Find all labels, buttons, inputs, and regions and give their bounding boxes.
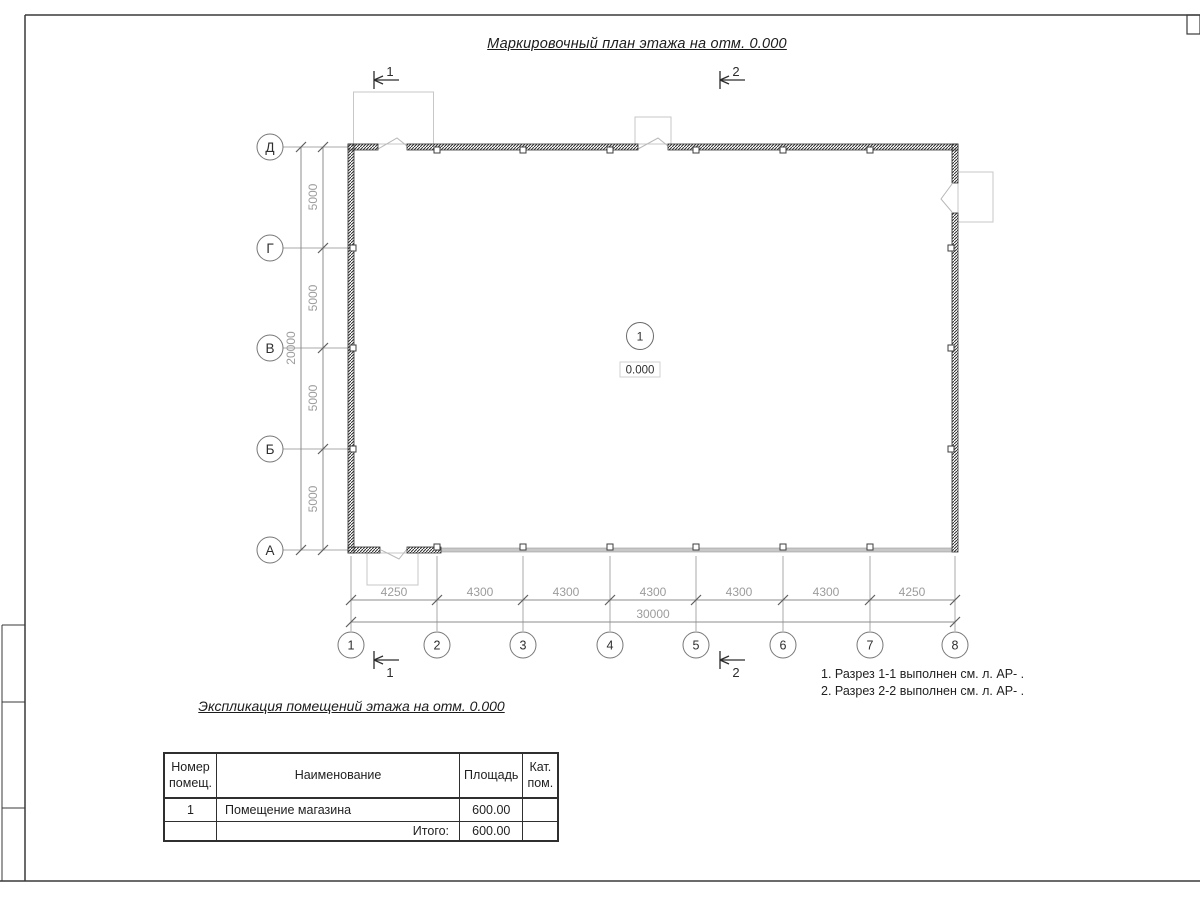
dim-h-5: 4300 — [726, 585, 753, 599]
door-right — [941, 184, 952, 212]
plan-title: Маркировочный план этажа на отм. 0.000 — [337, 36, 937, 52]
axis-row-a: А — [265, 543, 274, 558]
column-axis-labels: 1 2 3 4 5 6 7 8 — [348, 639, 959, 653]
header-area: Площадь — [460, 753, 523, 798]
frame-corner-cell — [1187, 15, 1200, 34]
axis-col-4: 4 — [607, 639, 614, 653]
axis-row-g: Г — [266, 241, 274, 256]
room-number: 1 — [637, 330, 644, 344]
door-swings — [378, 138, 952, 559]
wall-top-3 — [668, 144, 958, 150]
room-marker: 1 0.000 — [620, 323, 660, 378]
row-axis-labels: Д Г В Б А — [265, 140, 274, 558]
horizontal-dimension-labels: 4250 4300 4300 4300 4300 4300 4250 30000 — [381, 585, 926, 621]
axis-col-5: 5 — [693, 639, 700, 653]
wall-right-2 — [952, 213, 958, 552]
table-total-row: Итого: 600.00 — [164, 822, 558, 842]
notes: 1. Разрез 1-1 выполнен см. л. АР- . 2. Р… — [821, 666, 1024, 700]
drawing-sheet: 5000 5000 5000 5000 20000 4250 4300 4300… — [0, 0, 1200, 900]
elevation-value: 0.000 — [626, 365, 655, 377]
axis-col-1: 1 — [348, 639, 355, 653]
dim-h-6: 4300 — [813, 585, 840, 599]
section-1-top-label: 1 — [386, 64, 393, 79]
cell-room-name: Помещение магазина — [217, 798, 460, 822]
dim-v-2: 5000 — [306, 284, 320, 311]
section-2-top-label: 2 — [732, 64, 739, 79]
cell-total-category — [523, 822, 558, 842]
entrance-porches — [354, 92, 994, 585]
cell-room-area: 600.00 — [460, 798, 523, 822]
explication-table: Номер помещ. Наименование Площадь Кат. п… — [163, 752, 559, 842]
dim-h-total: 30000 — [636, 607, 670, 621]
dim-v-total: 20000 — [284, 331, 298, 365]
table-row: 1 Помещение магазина 600.00 — [164, 798, 558, 822]
axis-col-3: 3 — [520, 639, 527, 653]
axis-row-d: Д — [265, 140, 274, 155]
header-name: Наименование — [217, 753, 460, 798]
table-header-row: Номер помещ. Наименование Площадь Кат. п… — [164, 753, 558, 798]
column-axis-bubbles — [338, 632, 968, 658]
door-bottom-left — [381, 549, 407, 559]
porch-top-middle — [635, 117, 671, 144]
axis-col-8: 8 — [952, 639, 959, 653]
section-marks — [374, 71, 745, 669]
dimension-ticks — [296, 142, 960, 627]
table-title: Экспликация помещений этажа на отм. 0.00… — [163, 698, 540, 714]
porch-right — [958, 172, 993, 222]
dim-v-1: 5000 — [306, 183, 320, 210]
cell-total-area: 600.00 — [460, 822, 523, 842]
axis-row-v: В — [265, 341, 274, 356]
dim-h-3: 4300 — [553, 585, 580, 599]
dim-h-4: 4300 — [640, 585, 667, 599]
cell-room-number: 1 — [164, 798, 217, 822]
note-line-1: 1. Разрез 1-1 выполнен см. л. АР- . — [821, 666, 1024, 683]
axis-col-6: 6 — [780, 639, 787, 653]
dim-h-2: 4300 — [467, 585, 494, 599]
note-line-2: 2. Разрез 2-2 выполнен см. л. АР- . — [821, 683, 1024, 700]
axis-col-7: 7 — [867, 639, 874, 653]
section-2-bottom-label: 2 — [732, 665, 739, 680]
header-room-number: Номер помещ. — [164, 753, 217, 798]
porch-bottom-left — [367, 553, 418, 585]
wall-right-1 — [952, 144, 958, 183]
header-category: Кат. пом. — [523, 753, 558, 798]
cell-total-empty — [164, 822, 217, 842]
axis-extension-lines — [283, 147, 955, 631]
porch-top-left — [354, 92, 434, 144]
axis-row-b: Б — [266, 442, 275, 457]
dim-v-3: 5000 — [306, 384, 320, 411]
wall-bottom-1 — [348, 547, 380, 553]
cell-total-label: Итого: — [217, 822, 460, 842]
column-pilasters — [350, 147, 954, 550]
walls — [348, 144, 958, 553]
axis-col-2: 2 — [434, 639, 441, 653]
dim-h-7: 4250 — [899, 585, 926, 599]
dim-v-4: 5000 — [306, 485, 320, 512]
dim-h-1: 4250 — [381, 585, 408, 599]
section-1-bottom-label: 1 — [386, 665, 393, 680]
cell-room-category — [523, 798, 558, 822]
